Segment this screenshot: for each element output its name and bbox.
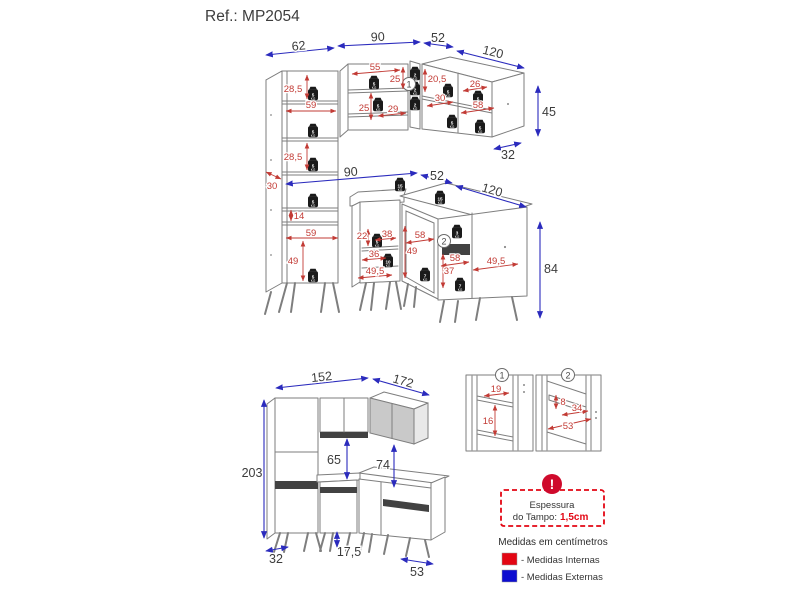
dim-tall-bottom-height: 49 <box>288 256 299 267</box>
svg-text:KG: KG <box>372 86 377 90</box>
weight-icon: 5KG <box>308 124 318 138</box>
dim-corner-door-width: 58 <box>415 230 426 241</box>
detail-2-badge-label: 2 <box>565 370 570 380</box>
dim-detail2-bottom-width: 53 <box>563 421 574 432</box>
dim-corner-door-height: 49 <box>407 246 418 257</box>
dim-right-bottom-width: 58 <box>473 100 484 111</box>
asm-glass-cabinet-side <box>414 403 428 444</box>
dim-tall-depth: 30 <box>267 181 278 192</box>
base-cabinet-side <box>352 202 360 287</box>
detail-marker-1-label: 1 <box>406 79 411 89</box>
asm-tall-side <box>267 398 275 539</box>
internal-measures-label: - Medidas Internas <box>521 555 600 566</box>
svg-text:KG: KG <box>311 168 316 172</box>
svg-text:KG: KG <box>376 108 381 112</box>
thickness-notice-line2: do Tampo: <box>513 512 557 523</box>
external-measures-swatch <box>502 570 517 582</box>
dim-base-corner-width: 52 <box>430 169 444 183</box>
weight-icon: 3KG <box>452 225 462 239</box>
dim-wall-corner-width: 52 <box>431 31 445 45</box>
legend: ! Espessura do Tampo: 1,5cm Medidas em c… <box>498 474 608 583</box>
dim-tall-gap-height: 14 <box>294 211 305 222</box>
dim-wall-right-height: 45 <box>542 105 556 119</box>
svg-text:KG: KG <box>311 204 316 208</box>
page-title: Ref.: MP2054 <box>205 8 300 25</box>
dim-detail1-height: 16 <box>483 416 494 427</box>
weight-icon: 2KG <box>410 97 420 111</box>
dim-asm-left-width: 152 <box>310 369 332 385</box>
weight-icon: 5KG <box>308 269 318 283</box>
thickness-notice-line1: Espessura <box>530 500 576 511</box>
dim-wall-shelf-width: 55 <box>370 62 381 73</box>
svg-text:KG: KG <box>446 94 451 98</box>
asm-tall-door-gap <box>275 481 318 489</box>
svg-text:KG: KG <box>386 264 391 268</box>
dim-detail1-width: 19 <box>491 384 502 395</box>
dim-tall-shelf-width: 59 <box>306 100 317 111</box>
detail-1-badge-label: 1 <box>499 370 504 380</box>
dim-wall-right-width: 120 <box>481 43 505 62</box>
dim-corner-right-width: 49,5 <box>487 256 506 267</box>
asm-upper-cabinet-band <box>320 432 368 438</box>
svg-text:KG: KG <box>311 134 316 138</box>
dim-wall-right-depth: 32 <box>501 148 515 162</box>
asm-corner-side <box>431 477 445 540</box>
weight-icon: 5KG <box>447 115 457 129</box>
asm-tall-front <box>275 398 318 533</box>
dim-detail2-height: 8 <box>560 397 565 408</box>
dim-wall-bottom-width: 29 <box>388 104 399 115</box>
assembled-view: 152 172 203 65 74 32 17,5 53 <box>242 369 449 579</box>
weight-icon: 5KG <box>372 234 382 248</box>
warning-icon-glyph: ! <box>550 476 555 492</box>
asm-base-band <box>320 487 357 493</box>
weight-icon: 7KG <box>455 278 465 292</box>
dim-asm-height: 203 <box>242 466 263 480</box>
svg-text:KG: KG <box>478 130 483 134</box>
legend-units-label: Medidas em centímetros <box>498 537 608 548</box>
thickness-notice-value: 1,5cm <box>560 512 588 523</box>
svg-text:KG: KG <box>398 188 403 192</box>
dim-wall-left-width: 62 <box>291 38 306 53</box>
detail-marker-2-label: 2 <box>441 236 446 246</box>
weight-icon: 5KG <box>308 158 318 172</box>
dim-tall-shelf2-width: 59 <box>306 228 317 239</box>
weight-icon: 15KG <box>395 178 405 192</box>
dim-wall-mid-height: 25 <box>359 103 370 114</box>
dim-base-top-height: 22 <box>357 231 368 242</box>
dim-wall-mid-width: 90 <box>370 30 385 45</box>
dim-asm-right-width: 172 <box>391 372 415 391</box>
external-measures-label: - Medidas Externas <box>521 572 603 583</box>
dim-tall-top-height: 28,5 <box>284 84 303 95</box>
dim-asm-leg-height: 17,5 <box>337 545 361 559</box>
weight-icon: 5KG <box>369 76 379 90</box>
svg-text:KG: KG <box>375 244 380 248</box>
dim-corner-height: 20,5 <box>428 74 447 85</box>
weight-icon: 5KG <box>475 120 485 134</box>
dim-asm-base-depth: 53 <box>410 565 424 579</box>
svg-text:KG: KG <box>311 279 316 283</box>
weight-icon: 5KG <box>373 98 383 112</box>
svg-text:KG: KG <box>413 107 418 111</box>
svg-text:KG: KG <box>450 125 455 129</box>
weight-icon: 10KG <box>383 254 393 268</box>
technical-sheet: Ref.: MP2054 5KG 5KG 5KG <box>0 0 810 590</box>
weight-icon: 5KG <box>308 194 318 208</box>
svg-text:KG: KG <box>423 278 428 282</box>
internal-measures-swatch <box>502 553 517 565</box>
wall-cabinet-side <box>340 64 348 137</box>
dim-right-shelf-width: 30 <box>435 93 446 104</box>
dim-right-top-width: 26 <box>470 79 481 90</box>
svg-text:KG: KG <box>455 235 460 239</box>
dim-base-mid-width: 90 <box>343 165 358 180</box>
dim-asm-depth: 32 <box>269 552 283 566</box>
weight-icon: 5KG <box>308 87 318 101</box>
weight-icon: 15KG <box>435 191 445 205</box>
weight-icon: 7KG <box>420 268 430 282</box>
svg-text:KG: KG <box>458 288 463 292</box>
dim-base-shelf-width: 38 <box>382 229 393 240</box>
dim-tall-mid-height: 28,5 <box>284 152 303 163</box>
dim-asm-gap-upper: 65 <box>327 453 341 467</box>
dim-base-bottom-width: 49,5 <box>366 266 385 277</box>
dim-wall-top-height: 25 <box>390 74 401 85</box>
svg-text:KG: KG <box>413 92 418 96</box>
svg-text:KG: KG <box>438 201 443 205</box>
dim-detail2-width: 34 <box>572 403 583 414</box>
dim-corner-inner-height: 37 <box>444 266 455 277</box>
dim-base-height: 84 <box>544 262 558 276</box>
dim-corner-inner-width: 58 <box>450 253 461 264</box>
dim-base-mid-width: 36 <box>369 249 380 260</box>
dim-asm-gap-corner: 74 <box>376 458 390 472</box>
detail-views: 1 19 16 2 8 34 53 <box>466 369 601 452</box>
